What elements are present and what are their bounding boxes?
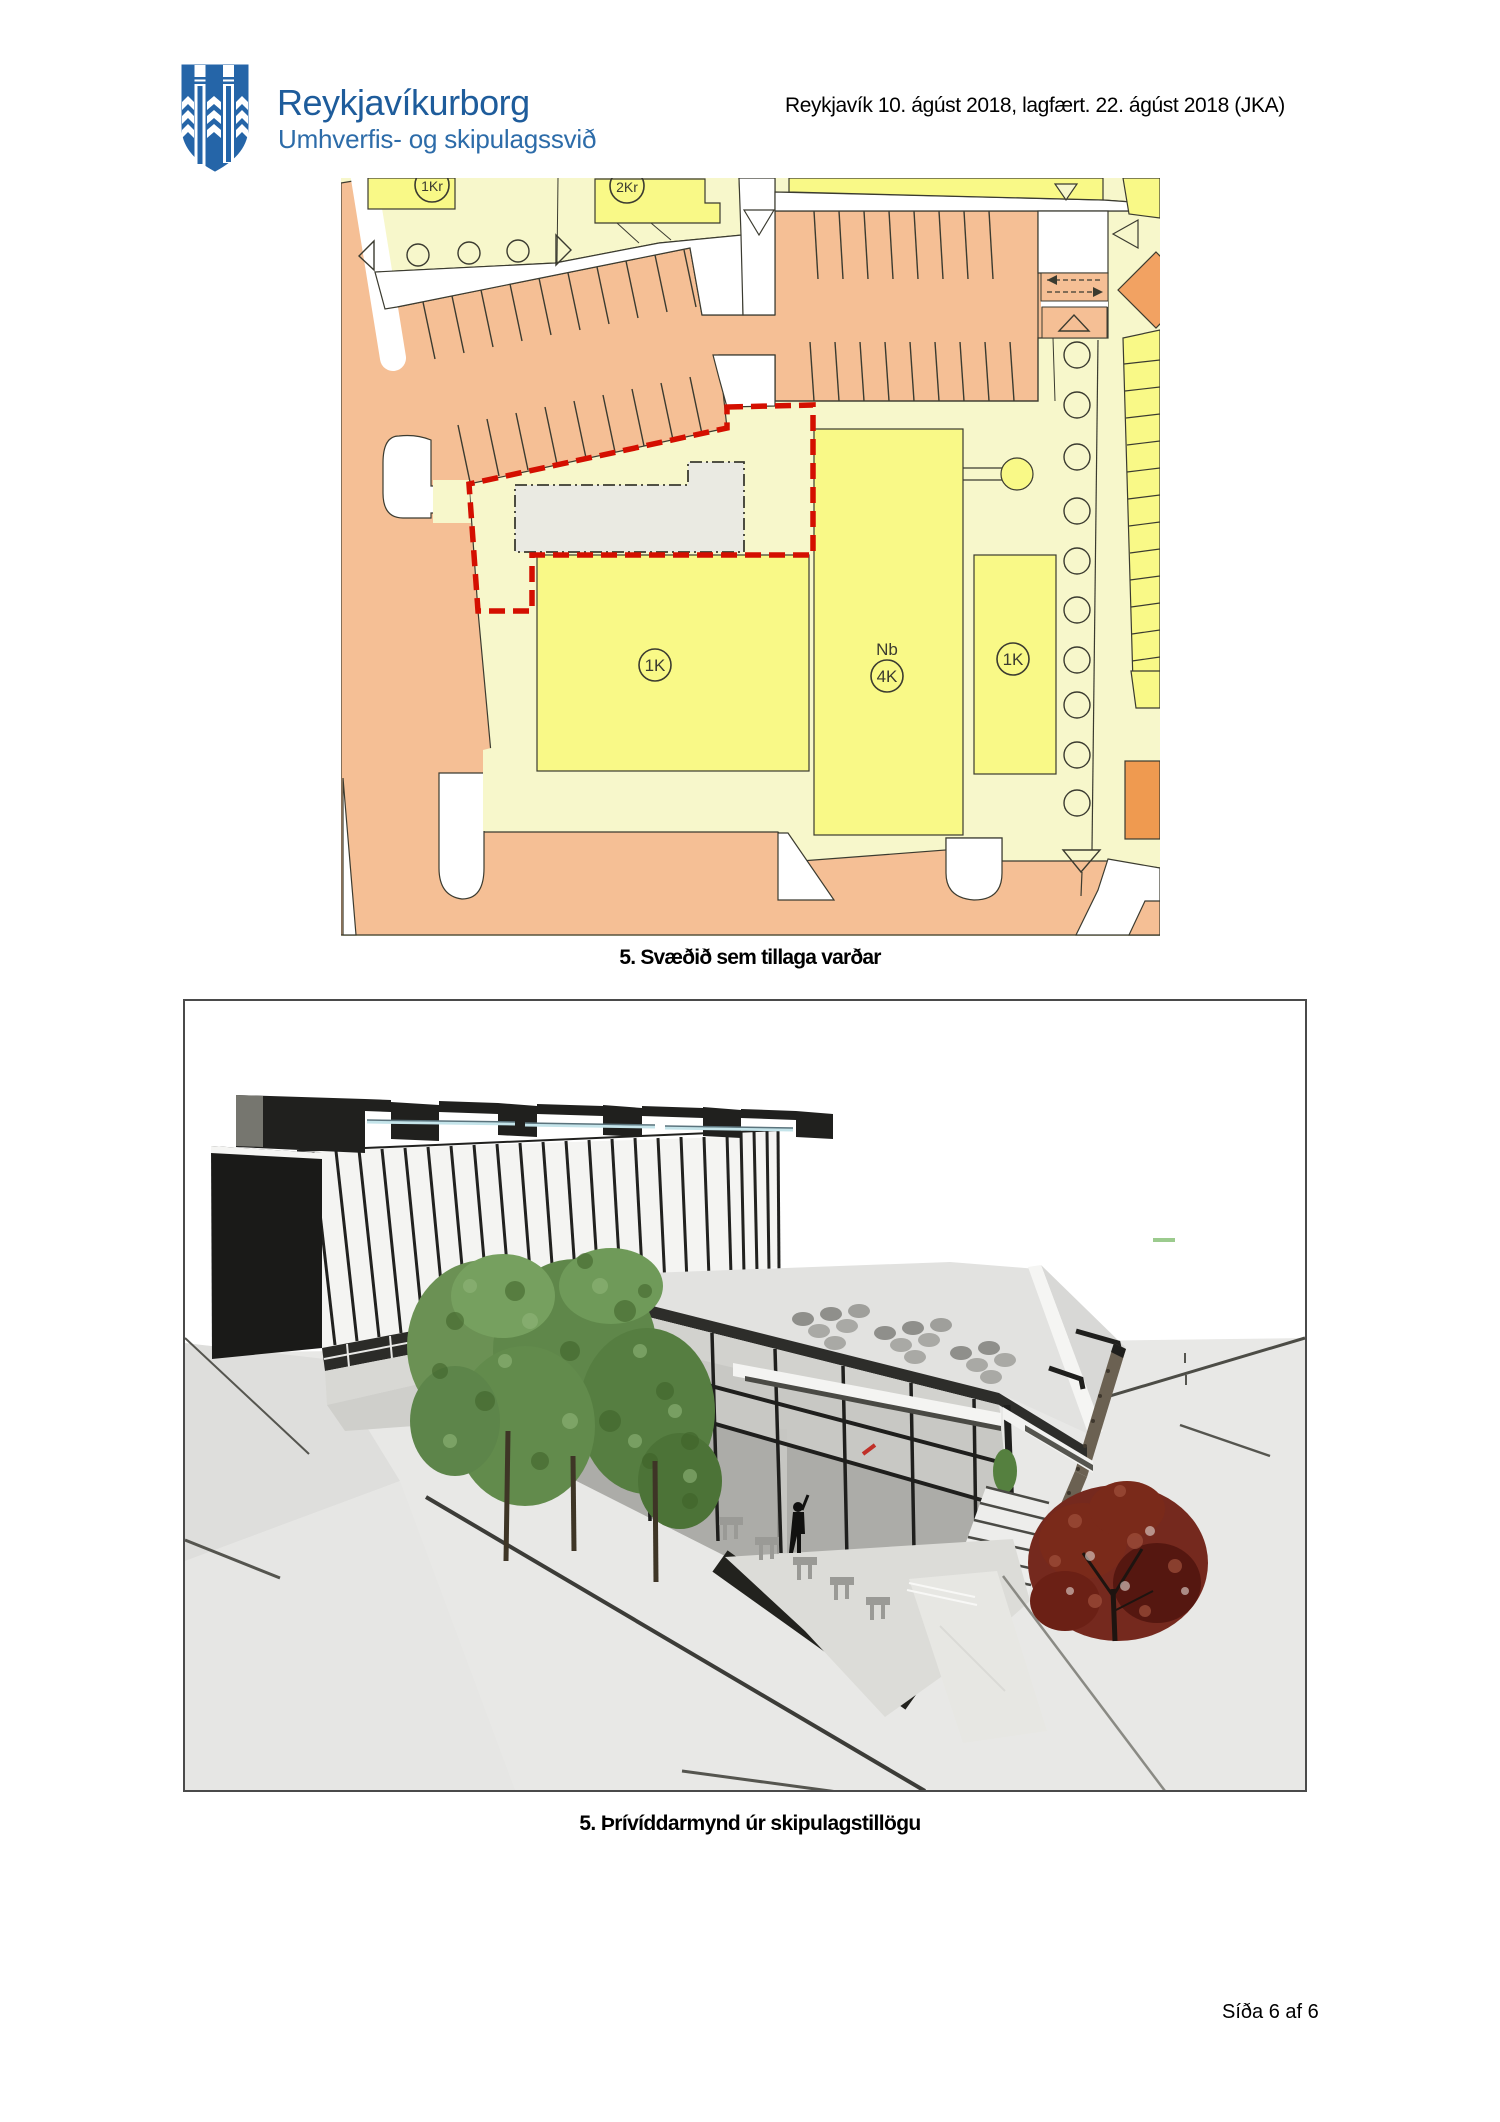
svg-text:1K: 1K bbox=[1003, 650, 1024, 669]
svg-text:Nb: Nb bbox=[876, 640, 898, 659]
svg-text:1Kr: 1Kr bbox=[421, 178, 443, 194]
svg-text:1K: 1K bbox=[645, 656, 666, 675]
svg-text:4K: 4K bbox=[877, 667, 898, 686]
svg-text:2Kr: 2Kr bbox=[616, 179, 638, 195]
